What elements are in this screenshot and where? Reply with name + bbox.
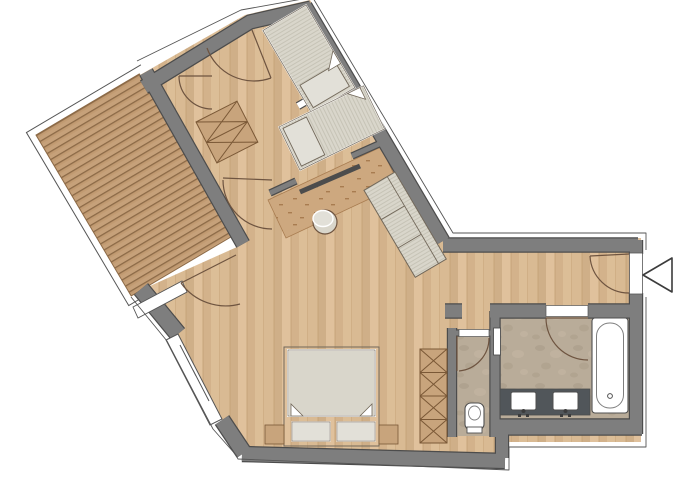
bed-pillow-right: [337, 422, 375, 441]
sink-right: [553, 392, 578, 410]
bed-pillow-left: [292, 422, 330, 441]
toilet-cistern: [467, 427, 482, 433]
bathtub: [592, 318, 628, 413]
bathroom-door-threshold: [546, 306, 588, 317]
bed-duvet: [288, 350, 375, 416]
sink-left: [511, 392, 536, 410]
floor-plan-drawing: [0, 0, 700, 500]
stool-top: [313, 211, 333, 227]
toilet: [465, 403, 484, 433]
nightstand-right: [379, 425, 398, 444]
wall-radiator: [494, 328, 501, 355]
entrance-arrow-icon: [643, 258, 672, 292]
x-shelf-column: [420, 349, 447, 443]
floor-plan-page: [0, 0, 700, 500]
wc-door-threshold: [459, 330, 489, 337]
entrance-threshold: [630, 253, 643, 294]
nightstand-left: [265, 425, 284, 444]
round-stool: [313, 210, 337, 234]
